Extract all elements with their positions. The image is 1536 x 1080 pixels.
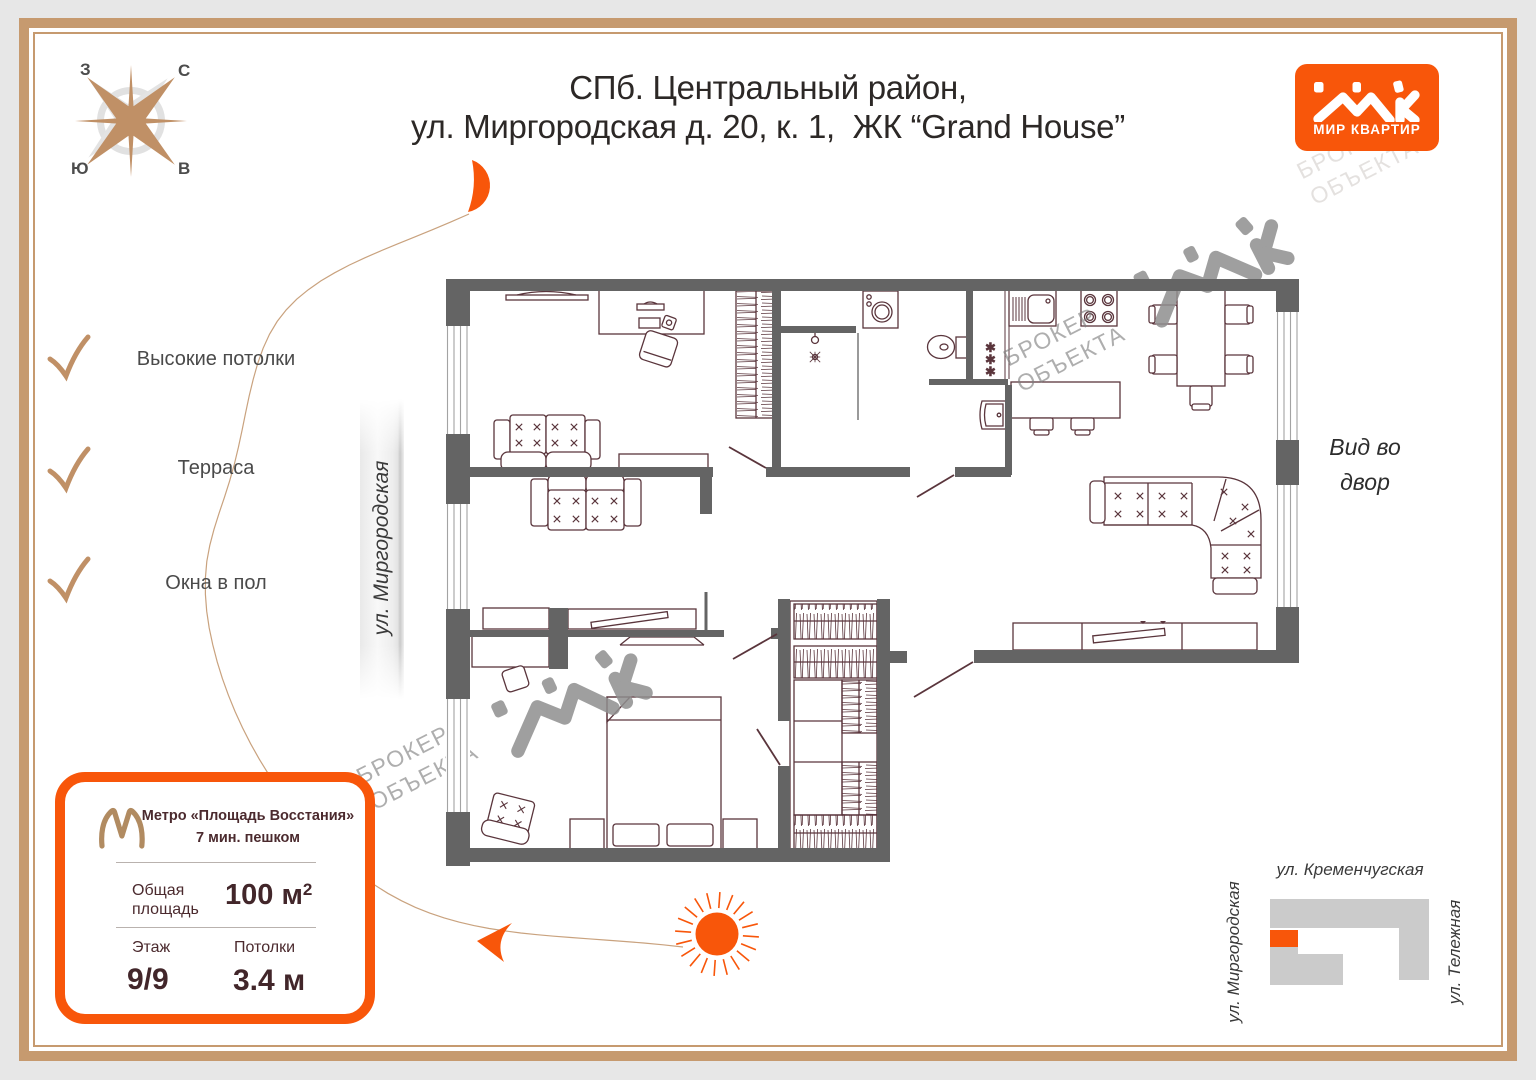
- svg-text:✱: ✱: [985, 364, 996, 379]
